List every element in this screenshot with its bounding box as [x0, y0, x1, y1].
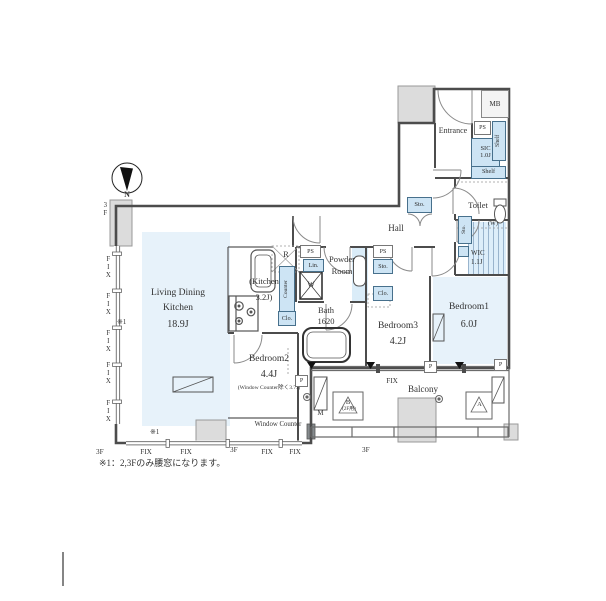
- shelf-label: Shelf: [482, 169, 495, 175]
- room-label-entrance: Entrance: [430, 126, 476, 135]
- room-label-powder-line2: Room: [318, 267, 366, 277]
- ps-label: PS: [307, 249, 314, 255]
- fix-label-left-3: FIX: [104, 330, 112, 354]
- room-label-bedroom1: Bedroom1: [436, 302, 502, 313]
- shelf-label: Shelf: [496, 135, 502, 147]
- room-label-bedroom3: Bedroom3: [368, 321, 428, 332]
- fixture-box-p-bedroom3: P: [424, 361, 437, 373]
- sto-label: Sto.: [414, 202, 424, 209]
- fixture-box-shelf: Shelf: [471, 166, 506, 179]
- fixture-box-clo-bedroom3: Clo.: [373, 286, 393, 301]
- fixture-box-small-wic: [458, 246, 469, 257]
- clo-label: Clo.: [378, 291, 388, 297]
- fixture-box-ps-bedroom3: PS: [373, 245, 393, 258]
- floor-3f-label-left: 3F: [101, 202, 109, 218]
- fixture-box-sto-wic: Sto.: [458, 216, 472, 244]
- room-size-bath: 1620: [304, 317, 348, 327]
- ac-b-note-label: (2F用): [334, 407, 364, 413]
- sto-label: Sto.: [378, 264, 388, 270]
- mb-label: MB: [490, 101, 501, 108]
- room-size-wic: 1.1J: [471, 258, 482, 266]
- p-label: P: [499, 362, 502, 368]
- fix-label-bottom-1: FIX: [132, 448, 160, 456]
- floor-3f-label-bottom-2: 3F: [230, 446, 238, 454]
- ac-b-label: B: [340, 399, 356, 406]
- fix-label-left-2: FIX: [104, 293, 112, 317]
- room-size-ldk: 18.9J: [128, 319, 228, 331]
- room-label-powder-line1: Powder: [318, 255, 366, 265]
- fix-label-left-5: FIX: [104, 400, 112, 424]
- p-label: P: [300, 378, 303, 384]
- ps-label: PS: [479, 125, 486, 131]
- note-ref-bottom: ※1: [150, 428, 159, 436]
- fixture-box-ps-kitchen: PS: [300, 245, 321, 258]
- room-label-balcony: Balcony: [396, 384, 450, 394]
- p-label: P: [429, 364, 432, 370]
- ac-a-label: A: [471, 401, 488, 408]
- fix-label-bottom-2: FIX: [172, 448, 200, 456]
- fixture-box-p-bedroom2: P: [295, 375, 308, 387]
- clo-label: Clo.: [282, 316, 292, 322]
- fixture-box-counter: Counter: [279, 266, 295, 312]
- fix-label-balcony: FIX: [377, 377, 407, 385]
- room-label-bedroom2: Bedroom2: [238, 354, 300, 365]
- window-counter-label: Window Counter: [240, 421, 316, 429]
- room-label-wic: WIC: [471, 249, 485, 257]
- ps-label: PS: [380, 249, 387, 255]
- fix-label-left-1: FIX: [104, 256, 112, 280]
- fix-label-left-4: FIX: [104, 362, 112, 386]
- counter-label: Counter: [284, 280, 290, 298]
- room-size-bedroom2: 4.4J: [238, 369, 300, 381]
- room-label-ldk-line1: Living Dining: [128, 288, 228, 299]
- fixture-box-clo-kitchen: Clo.: [278, 311, 296, 326]
- floor-3f-label-balcony: 3F: [362, 446, 370, 454]
- fix-label-bottom-4: FIX: [281, 448, 309, 456]
- floorplan-linework: [0, 0, 606, 601]
- meter-label: M: [313, 409, 328, 417]
- room-label-toilet: Toilet: [458, 201, 498, 211]
- fixture-box-sto-bedroom3: Sto.: [373, 259, 393, 274]
- fixture-box-sto-hall: Sto.: [407, 197, 432, 213]
- sto-label: Sto.: [462, 226, 468, 235]
- fixture-box-shelf-vertical: Shelf: [492, 121, 506, 161]
- north-label: N: [121, 190, 133, 199]
- room-size-bedroom1: 6.0J: [436, 319, 502, 331]
- fixture-box-p-bedroom1: P: [494, 359, 507, 371]
- fix-label-bottom-3: FIX: [253, 448, 281, 456]
- fixture-box-lin: Lin.: [303, 259, 324, 272]
- sic-size: 1.0J: [480, 153, 491, 160]
- washer-place-label: (W): [480, 221, 506, 228]
- room-label-ldk-line2: Kitchen: [128, 303, 228, 314]
- room-size-bedroom3: 4.2J: [368, 336, 428, 348]
- lin-label: Lin.: [309, 263, 319, 269]
- fixture-box-mb: MB: [481, 90, 509, 118]
- room-label-bath: Bath: [304, 306, 348, 316]
- washer-label: W: [301, 280, 321, 289]
- footnote: ※1：2,3Fのみ腰窓になります。: [99, 458, 225, 468]
- note-ref-left: ※1: [117, 318, 126, 326]
- floor-3f-label-bottom-1: 3F: [96, 448, 104, 456]
- fixture-box-ps-entrance: PS: [474, 121, 491, 135]
- floor-plan: N Living Dining Kitchen 18.9J (Kitchen 3…: [0, 0, 606, 601]
- fridge-label: R: [275, 250, 297, 260]
- room-label-hall: Hall: [378, 223, 414, 233]
